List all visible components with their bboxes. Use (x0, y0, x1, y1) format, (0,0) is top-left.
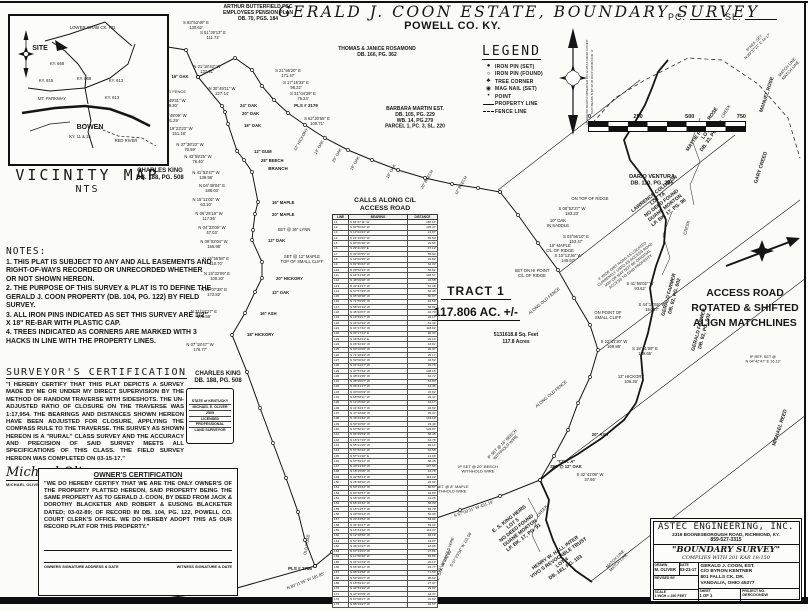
map-label: BRANCH (268, 166, 288, 171)
vicinity-map-caption: VICINITY MAP (10, 166, 165, 184)
calls-table-panel: CALLS ALONG C/L ACCESS ROAD LINE BEARING… (332, 197, 438, 608)
map-label: 20" OAK (331, 147, 343, 163)
map-label: 18" HICKORY (247, 332, 274, 337)
calls-table-body: L1S 84°47'11" W165.67'L2S 82°50'40" W135… (333, 220, 438, 608)
owner-signature-line (44, 539, 232, 551)
scale-bar-strip-offset (588, 127, 746, 132)
survey-sheet: { "page": { "title_main": "GERALD J. COO… (0, 0, 808, 611)
calls-table-row: L73N 88°19'27" W20.57' (333, 602, 438, 607)
corner-marker (254, 213, 257, 216)
corner-marker (537, 242, 540, 245)
scale-tick-label: 250 (634, 114, 643, 120)
legend-item: ♣TREE CORNER (482, 78, 578, 86)
map-label: ALONG OLD FENCE (534, 379, 568, 409)
vicinity-label: LOWER CRAB CK. RD. (70, 25, 117, 30)
corner-marker (517, 214, 520, 217)
corner-marker (252, 229, 255, 232)
corner-marker (567, 429, 570, 432)
corner-marker (197, 76, 200, 79)
client-block: GERALD J. COON, EST.C/O BYRON KENTNER801… (699, 563, 799, 590)
legend-item-label: IRON PIN (FOUND) (495, 71, 543, 77)
legend-item: ○IRON PIN (FOUND) (482, 71, 578, 79)
map-label: IP SET @ 16" BEECHWITHHOLD WIRE (486, 428, 521, 463)
vicinity-label: KY. 668 (50, 61, 65, 66)
witness-signature-line (44, 551, 232, 563)
scale-tick-label: 0 (588, 114, 591, 120)
corner-marker (261, 261, 264, 264)
map-label: SET ON HI POINTC/L OF RIDGE (515, 268, 550, 278)
vicinity-road (28, 88, 85, 91)
site-arrow-icon (55, 40, 68, 51)
pc-label: PC. (668, 12, 686, 22)
legend-item-label: FENCE LINE (495, 109, 527, 115)
map-label: 16" MAPLE (272, 200, 295, 205)
vicinity-label: KY. 613 (105, 95, 120, 100)
map-label: S 62°20'55" E100.71' (304, 116, 330, 126)
corner-marker (304, 124, 307, 127)
map-label: GERALD FARMERDB. 92, PG. 602 (660, 273, 683, 319)
corner-marker (297, 511, 300, 514)
legend-title: LEGEND (482, 44, 541, 60)
corner-marker (261, 277, 264, 280)
fence-line-symbol (482, 108, 495, 115)
corner-marker (324, 137, 327, 140)
corner-marker (573, 297, 576, 300)
corner-marker (557, 269, 560, 272)
map-label: N 06°25'19" W117.36' (195, 211, 222, 221)
map-label: 20" OAK (242, 111, 259, 116)
corner-marker (287, 112, 290, 115)
map-label: S 32°41'09" W37.66' (576, 472, 603, 482)
corner-marker (499, 191, 502, 194)
corner-marker (304, 539, 307, 542)
tree-corner-symbol: ♣ (482, 78, 495, 85)
owner-certification-body: "WE DO HEREBY CERTIFY THAT WE ARE THE ON… (44, 481, 232, 531)
map-label: S 31°04'39" E75.24' (290, 91, 316, 101)
plat-cabinet-slide-fields: PC. SL. (668, 10, 777, 22)
corner-marker (236, 150, 239, 153)
corner-marker (553, 455, 556, 458)
corner-marker (251, 239, 254, 242)
map-label: S 83°53'49" E130.62' (183, 20, 209, 30)
map-label: 12" OAK (272, 290, 289, 295)
corner-marker (244, 312, 247, 315)
calls-table-title-line2: ACCESS ROAD (332, 205, 438, 213)
corner-marker (371, 159, 374, 162)
company-name: ASTEC ENGINEERING, INC. (654, 522, 799, 532)
sl-blank-line (745, 10, 777, 20)
map-label: 12" OAK (268, 238, 285, 243)
legend-items: ●IRON PIN (SET)○IRON PIN (FOUND)♣TREE CO… (482, 63, 578, 116)
map-label: N 43°59'25" W76.40' (184, 154, 211, 164)
legend-item-label: MAG NAIL (SET) (495, 86, 537, 92)
map-label: MANUEL ROSE (759, 76, 776, 114)
map-label: S 10°13'36" W145.67' (554, 253, 581, 263)
map-label: ON POINT OFSMALL CLIFF (594, 310, 622, 320)
corner-marker (224, 111, 227, 114)
corner-marker (251, 171, 254, 174)
map-label: 18" OAK (244, 123, 261, 128)
notes-title: NOTES: (6, 246, 214, 257)
iron-pin-found-symbol: ○ (482, 71, 495, 78)
iron-pin-set-symbol: ● (482, 63, 495, 70)
legend-item: •POINT (482, 93, 578, 101)
witness-signature-caption: WITNESS SIGNATURE & DATE (177, 565, 232, 569)
surveyor-certification-title: SURVEYOR'S CERTIFICATION (6, 367, 187, 379)
vicinity-label: KY. 815 (39, 78, 54, 83)
map-label: N 80°11'05" W 181.85' (286, 571, 325, 591)
mag-nail-set-symbol: ◉ (482, 86, 495, 93)
corner-marker (589, 324, 592, 327)
map-label: 16" OAK (171, 74, 188, 79)
date-value: 03-23-17 (680, 567, 697, 572)
corner-marker (185, 49, 188, 52)
note-item: 1. THIS PLAT IS SUBJECT TO ANY AND ALL E… (6, 259, 214, 284)
corner-marker (272, 442, 275, 445)
map-label: 12" BEECH (453, 175, 468, 196)
owner-signature-caption: OWNERS SIGNATURE ADDRESS & DATE (44, 565, 119, 569)
legend-item: ◉MAG NAIL (SET) (482, 86, 578, 94)
map-label: MATCH LINEMATCH LINE (605, 548, 629, 572)
corner-marker (539, 479, 542, 482)
map-label: N 19°23'23" W151.18' (165, 126, 192, 136)
map-label: "COR. A"SET @ 12" OAK (550, 459, 582, 469)
legend-item-label: TREE CORNER (495, 79, 534, 85)
map-label: S 22°11'30" W169.86' (601, 339, 628, 349)
map-label: S 18°31'09" E169.66' (632, 346, 658, 356)
scale-bar: 0250500750 (588, 114, 746, 132)
sheet-value: 1 OF 1 (700, 593, 740, 598)
tract-name: TRACT 1 (441, 284, 511, 300)
company-phone: 859-527-3315 (654, 537, 799, 545)
access-road-note-line3: ALIGN MATCHLINES (684, 316, 806, 331)
map-label: 20" ASH (592, 432, 609, 437)
note-item: 4. TREES INDICATED AS CORNERS ARE MARKED… (6, 329, 214, 346)
note-item: 3. ALL IRON PINS INDICATED AS SET THIS S… (6, 312, 214, 329)
stamp-line: LAND SURVEYOR (189, 428, 231, 433)
tract-acres: 117.8 Acres (468, 339, 564, 346)
calls-table-title-line1: CALLS ALONG C/L (332, 197, 438, 205)
corner-marker (589, 376, 592, 379)
map-label: S 51°29'13" E111.72' (200, 30, 226, 40)
page-title: GERALD J. COON ESTATE, BOUNDARY SURVEY (278, 3, 690, 21)
map-label: 24" OAK (240, 103, 257, 108)
map-label: S 08°52'27" W183.23' (558, 206, 585, 216)
vicinity-road (85, 88, 88, 104)
tract-square-feet: 5131618.8 Sq. Feet (468, 332, 564, 339)
map-label: N 04°33'09" W47.03' (198, 225, 225, 235)
revised-label: REVISED BY (655, 576, 697, 580)
map-label: N 41°53'47" W139.98' (192, 170, 219, 180)
tract-area-detail: 5131618.8 Sq. Feet 117.8 Acres (468, 332, 564, 346)
map-label: S 17°15'33" E98.22' (283, 80, 309, 90)
vicinity-map: LOWER CRAB CK. RD.SITEKY. 668KY. 815KY. … (8, 14, 169, 166)
corner-marker (459, 509, 462, 512)
surveyor-certification-body: "I HEREBY CERTIFY THAT THIS PLAT DEPICTS… (6, 382, 184, 463)
notes-list: 1. THIS PLAT IS SUBJECT TO ANY AND ALL E… (6, 259, 214, 346)
notes-section: NOTES: 1. THIS PLAT IS SUBJECT TO ANY AN… (6, 246, 214, 347)
access-road-compass (726, 237, 800, 266)
corner-marker (577, 402, 580, 405)
map-label: MICHAEL REED (771, 408, 789, 446)
corner-marker (424, 177, 427, 180)
vicinity-label: KY. 11 & 15 (69, 134, 91, 139)
map-label: SET @ 12" MAPLETOP OF SMALL CLIFF (281, 254, 324, 264)
map-label: 4' WIDE DIRT ROAD AS LOCATEDCURRENTLY US… (594, 238, 659, 294)
map-label: IP SET @ 20" BEECHWITHHOLD WIRE (458, 464, 498, 474)
map-label: 12" HICKORY (292, 127, 309, 152)
corner-marker (597, 349, 600, 352)
note-item: 2. THE PURPOSE OF THIS SURVEY & PLAT IS … (6, 285, 214, 310)
client-line: VANDALIA, OHIO 45377 (701, 581, 797, 587)
map-label: HENRY W. HALL INTERVIVO S REVOCABLE TRUS… (526, 531, 595, 589)
map-label: 20" MAPLE (272, 212, 295, 217)
vicinity-label: KY. 668 (77, 76, 92, 81)
owner-certification-title: OWNER'S CERTIFICATION (44, 472, 232, 479)
corner-marker (254, 291, 257, 294)
vicinity-river (98, 128, 156, 146)
map-label: IP REF. SETN 89°37'21" E 14.17' (741, 29, 772, 60)
corner-marker (246, 371, 249, 374)
vicinity-label: RED RIVER (115, 138, 138, 143)
vicinity-map-drawing: LOWER CRAB CK. RD.SITEKY. 668KY. 815KY. … (10, 16, 163, 160)
map-label: N 21°18'42" W133.91' (193, 64, 220, 74)
legend-item: FENCE LINE (482, 108, 578, 116)
vicinity-label: MT. PARKWAY (38, 96, 66, 101)
vicinity-label: BOWEN (77, 124, 104, 131)
scale-tick-label: 750 (737, 114, 746, 120)
corner-marker (273, 99, 276, 102)
access-road-note-line1: ACCESS ROAD (684, 286, 806, 301)
access-road-note: ACCESS ROAD ROTATED & SHIFTED ALIGN MATC… (684, 286, 806, 332)
legend-item: ●IRON PIN (SET) (482, 63, 578, 71)
map-label: 16" OAK (349, 155, 361, 171)
map-label: THOMAS & JANICE ROSAMONDDB. 166, PG. 362 (338, 46, 416, 58)
vicinity-road (30, 122, 70, 131)
point-symbol: • (482, 93, 495, 100)
map-label: CREEK (682, 220, 691, 235)
map-label: PLS # 3179 (294, 103, 318, 108)
map-label: GARY CREED (753, 151, 769, 185)
corner-marker (251, 69, 254, 72)
map-label: 16" ASH (260, 311, 277, 316)
vicinity-label: SITE (32, 45, 48, 52)
map-label: THAT BEARS N 86°49' W 183.5' FROM COR. '… (590, 49, 594, 115)
map-label: ON TOP OF RIDGE (571, 196, 608, 201)
project-value: GERCOONDW (742, 593, 797, 597)
legend: LEGEND ●IRON PIN (SET)○IRON PIN (FOUND)♣… (482, 42, 578, 116)
corner-marker (397, 169, 400, 172)
drawn-value: M. OLIVER (655, 567, 679, 572)
legend-item-label: IRON PIN (SET) (495, 64, 534, 70)
map-label: 20" HICKORY (276, 276, 303, 281)
map-label: N 37°38'23" W70.59' (176, 142, 203, 152)
compliance-note: COMPLIES WITH 201 KAR 18:150 (654, 555, 799, 563)
map-label: PLS # 2786 (288, 566, 312, 571)
property-line-symbol (482, 101, 495, 108)
corner-marker (347, 149, 350, 152)
map-label: MATCH LINEMATCH LINE (777, 56, 800, 81)
vicinity-map-scale-note: NTS (10, 184, 165, 195)
tract-acreage: 117.806 AC. +/- (432, 305, 520, 321)
scale-bar-ticks: 0250500750 (588, 114, 746, 120)
map-label: S 57°23'04" W 111.06' (449, 531, 473, 568)
corner-marker (285, 477, 288, 480)
corner-marker (234, 57, 237, 60)
legend-item-label: POINT (495, 94, 511, 100)
corner-marker (261, 85, 264, 88)
tract-info: TRACT 1 117.806 AC. +/- (418, 282, 534, 321)
map-label: MAGNETIC NORTH OBSERVED ON 12-28-16 FROM… (585, 39, 589, 124)
map-label: 18" MAPLEC/L OF RIDGE (546, 243, 574, 253)
calls-table: LINE BEARING DISTANCE L1S 84°47'11" W165… (332, 214, 438, 608)
map-label: 12" HICKORY106.26' (618, 374, 645, 384)
owner-signature-lines (44, 539, 232, 563)
document-type: "BOUNDARY SURVEY" (654, 545, 799, 555)
surveyor-stamp: STATE of KENTUCKYMICHAEL E. OLIVER2505LI… (186, 388, 234, 444)
map-label: IP REF. SET @N 04°42'47" E 16.19' (746, 355, 781, 363)
corner-marker (451, 183, 454, 186)
scale-tick-label: 500 (685, 114, 694, 120)
corner-marker (259, 407, 262, 410)
map-label: S 21°56'20" E171.47' (275, 68, 301, 78)
map-label: E. S. KING HEIRSLOT 5NO DEED FOUNDDUANE … (491, 504, 543, 554)
map-label: SET @ 36" LYNN (278, 227, 311, 232)
owner-certification: OWNER'S CERTIFICATION "WE DO HEREBY CERT… (38, 468, 238, 596)
map-label: 14" OAK (313, 139, 325, 155)
map-label: N 04°49'04" E188.03' (199, 183, 225, 193)
map-label: 10" OAKIN SADDLE (547, 218, 569, 228)
map-label: BARBARA MARTIN EST.DB. 105, PG. 229WB. 1… (385, 106, 445, 130)
legend-item: PROPERTY LINE (482, 101, 578, 109)
map-label: 12" GUM (254, 149, 272, 154)
map-label: N 15°11'02" W63.10' (193, 197, 220, 207)
corner-marker (243, 159, 246, 162)
access-road-note-line2: ROTATED & SHIFTED (684, 301, 806, 316)
corner-marker (477, 187, 480, 190)
sl-label: SL. (725, 12, 742, 22)
corner-marker (221, 105, 224, 108)
vicinity-label: KY. 613 (109, 78, 124, 83)
map-label: 28" BEECH (261, 158, 283, 163)
corner-marker (257, 201, 260, 204)
corner-marker (314, 565, 317, 568)
title-block: ASTEC ENGINEERING, INC. 2319 BOONESBOROU… (650, 518, 802, 602)
vicinity-compass-icon (18, 30, 34, 78)
page-subtitle: POWELL CO. KY. (280, 20, 625, 32)
pc-blank-line (690, 10, 722, 20)
scale-value: 1 INCH = 250 FEET (655, 594, 697, 598)
corner-marker (499, 495, 502, 498)
corner-marker (231, 334, 234, 337)
vicinity-road-parkway (22, 106, 150, 126)
corner-marker (227, 123, 230, 126)
legend-item-label: PROPERTY LINE (495, 101, 538, 107)
